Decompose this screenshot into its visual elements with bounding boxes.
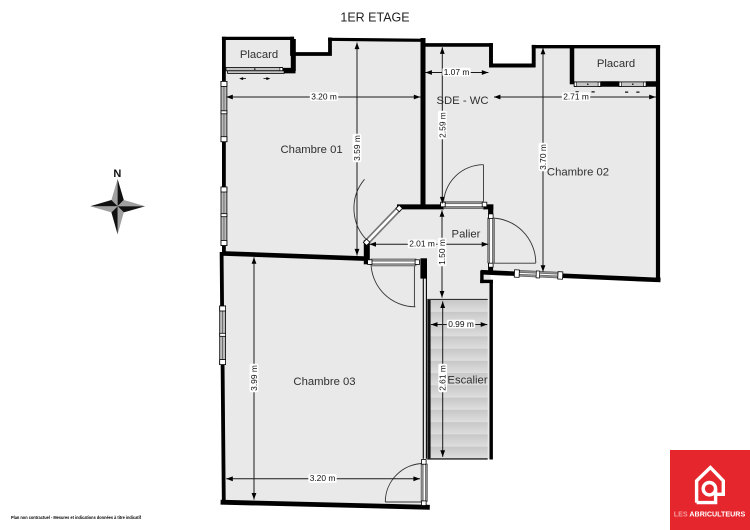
svg-text:Placard: Placard [597, 58, 635, 70]
svg-text:3.99 m: 3.99 m [249, 365, 259, 391]
svg-text:1.07 m: 1.07 m [444, 67, 470, 77]
svg-text:2.01 m: 2.01 m [409, 239, 435, 249]
svg-text:Chambre 02: Chambre 02 [547, 167, 609, 179]
svg-text:2.71 m: 2.71 m [563, 91, 589, 101]
svg-text:0.99 m: 0.99 m [448, 319, 474, 329]
svg-text:2.61 m: 2.61 m [438, 365, 448, 391]
svg-text:N: N [113, 168, 121, 180]
svg-text:2.59 m: 2.59 m [437, 112, 447, 138]
svg-text:LES ABRICULTEURS: LES ABRICULTEURS [674, 512, 746, 519]
svg-text:3.20 m: 3.20 m [311, 91, 337, 101]
svg-text:Escalier: Escalier [447, 375, 487, 387]
svg-text:Placard: Placard [240, 49, 278, 61]
svg-text:3.20 m: 3.20 m [310, 473, 336, 483]
svg-text:1.50 m: 1.50 m [437, 239, 447, 265]
svg-text:Plan non contractuel - Mesures: Plan non contractuel - Mesures et indica… [11, 515, 142, 520]
svg-text:3.59 m: 3.59 m [352, 135, 362, 161]
svg-text:SDE - WC: SDE - WC [436, 95, 488, 107]
svg-text:1ER ETAGE: 1ER ETAGE [340, 11, 409, 25]
svg-text:Chambre 03: Chambre 03 [293, 376, 355, 388]
svg-text:Chambre 01: Chambre 01 [281, 144, 343, 156]
svg-text:Palier: Palier [452, 229, 481, 241]
